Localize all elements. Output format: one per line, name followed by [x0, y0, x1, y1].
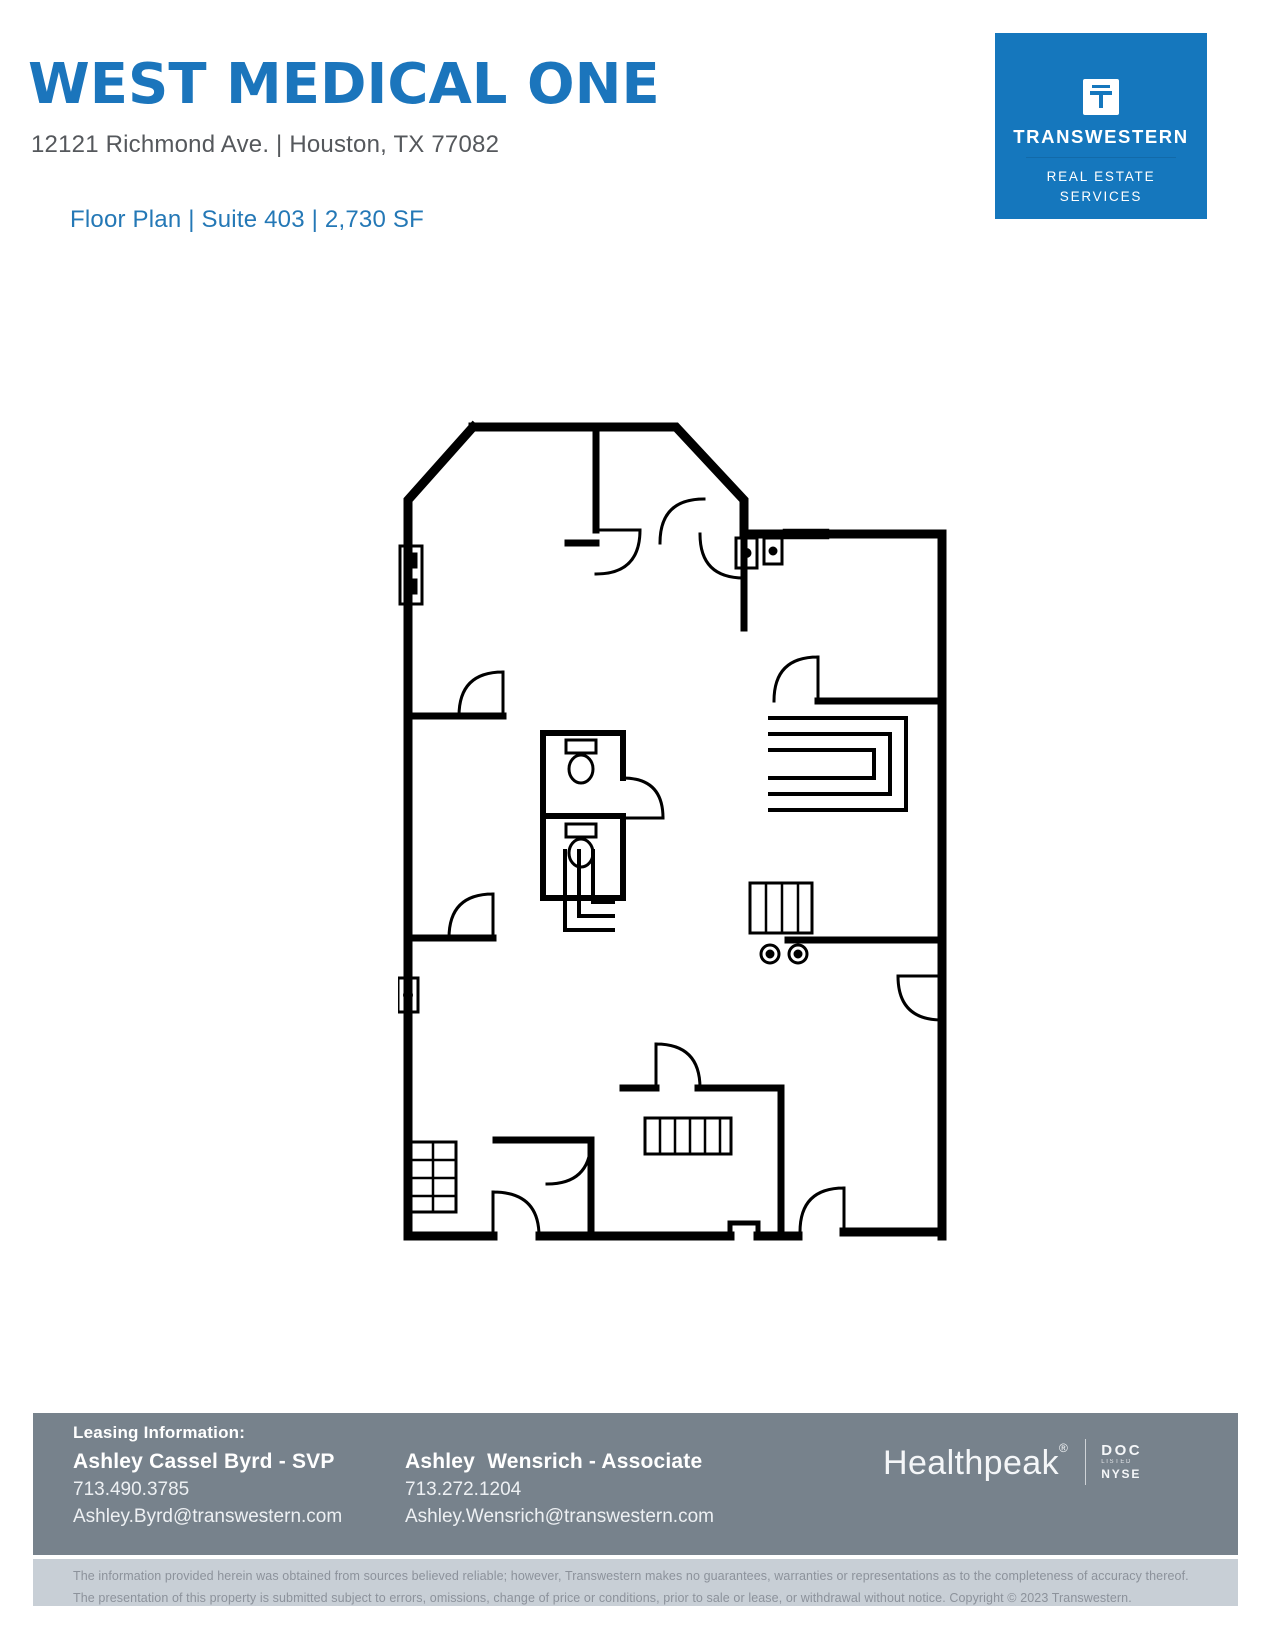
property-address: 12121 Richmond Ave. | Houston, TX 77082: [31, 131, 499, 159]
contact-email: Ashley.Wensrich@transwestern.com: [405, 1504, 714, 1531]
transwestern-wordmark: TRANSWESTERN: [1013, 126, 1188, 148]
logo-vertical-divider: [1085, 1439, 1086, 1485]
registered-mark: ®: [1059, 1441, 1068, 1455]
disclaimer-line2: The presentation of this property is sub…: [73, 1588, 1238, 1610]
floor-plan-subtitle: Floor Plan | Suite 403 | 2,730 SF: [70, 206, 424, 234]
contact-name: Ashley Cassel Byrd - SVP: [73, 1450, 342, 1474]
exchange-label: NYSE: [1101, 1468, 1142, 1481]
floor-plan-drawing: [398, 418, 958, 1248]
contact-email: Ashley.Byrd@transwestern.com: [73, 1504, 342, 1531]
transwestern-tagline: REAL ESTATE SERVICES: [1047, 167, 1156, 208]
leasing-label: Leasing Information:: [73, 1423, 245, 1443]
tagline-line2: SERVICES: [1060, 189, 1142, 204]
logo-divider: [1026, 157, 1176, 158]
transwestern-logo: TRANSWESTERN REAL ESTATE SERVICES: [995, 33, 1207, 219]
page-title: WEST MEDICAL ONE: [28, 52, 660, 117]
nyse-doc-ticker: DOC LISTED NYSE: [1101, 1443, 1142, 1481]
contact-phone: 713.272.1204: [405, 1477, 714, 1504]
flyer-page: WEST MEDICAL ONE 12121 Richmond Ave. | H…: [0, 0, 1275, 1651]
disclaimer-line1: The information provided herein was obta…: [73, 1566, 1238, 1588]
tagline-line1: REAL ESTATE: [1047, 169, 1156, 184]
contact-card-2: Ashley Wensrich - Associate 713.272.1204…: [405, 1450, 714, 1531]
contact-card-1: Ashley Cassel Byrd - SVP 713.490.3785 As…: [73, 1450, 342, 1531]
contact-name: Ashley Wensrich - Associate: [405, 1450, 714, 1474]
disclaimer: The information provided herein was obta…: [33, 1559, 1238, 1606]
listed-label: LISTED: [1101, 1458, 1142, 1468]
ticker-symbol: DOC: [1101, 1443, 1142, 1458]
contact-phone: 713.490.3785: [73, 1477, 342, 1504]
healthpeak-wordmark: Healthpeak®: [883, 1441, 1068, 1483]
leasing-bar: Leasing Information: Ashley Cassel Byrd …: [33, 1413, 1238, 1555]
transwestern-t-icon: [1083, 79, 1119, 115]
healthpeak-logo: Healthpeak® DOC LISTED NYSE: [883, 1439, 1142, 1485]
